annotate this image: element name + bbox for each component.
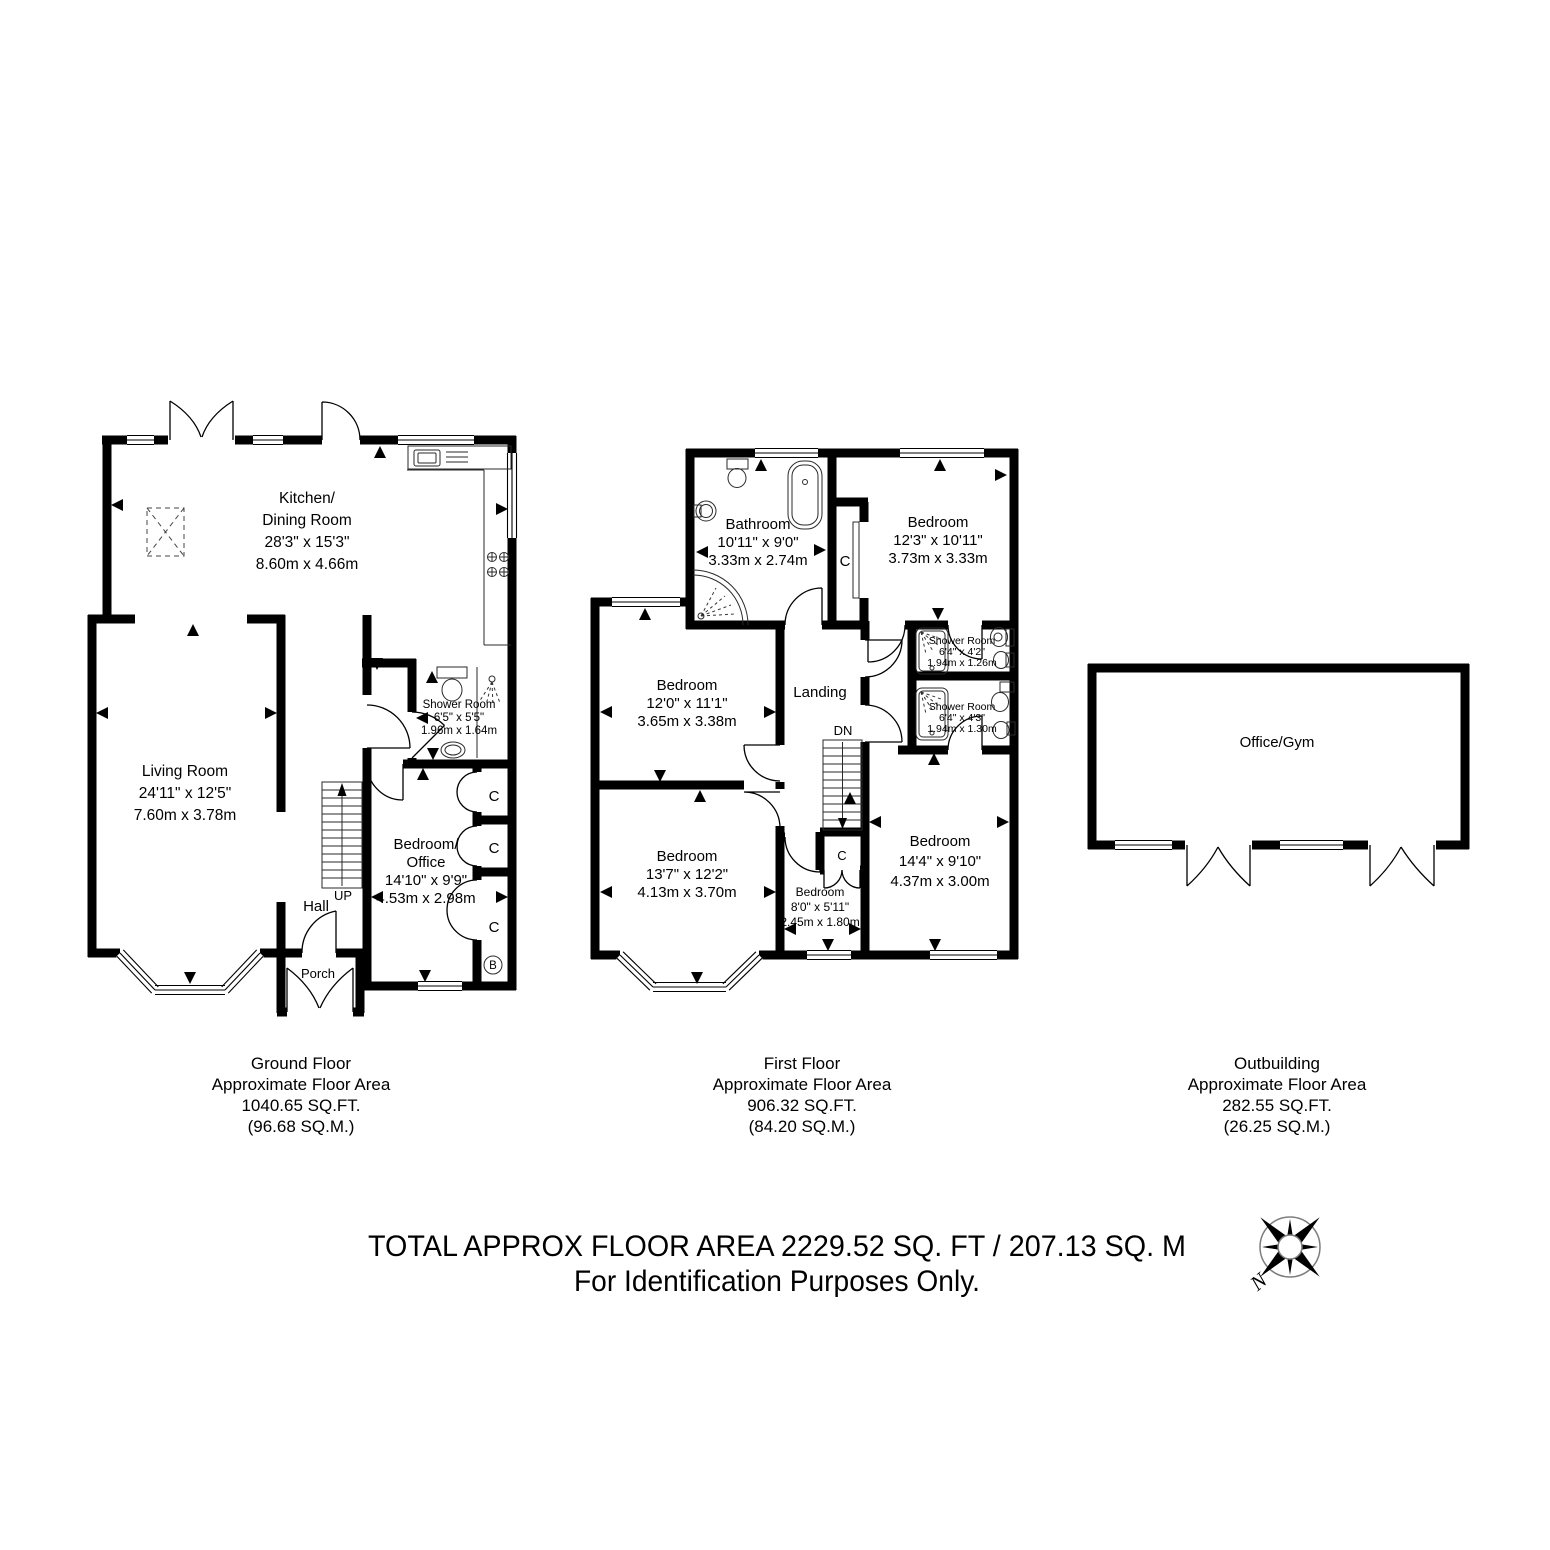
closet-door-3 [447, 880, 477, 940]
label-bedrear-metric: 3.73m x 3.33m [888, 550, 987, 567]
label-boiler: B [489, 960, 497, 972]
gf-caption-title: Ground Floor [251, 1054, 351, 1073]
label-kitchen-name2: Dining Room [262, 512, 352, 529]
label-living-imperial: 24'11" x 12'5" [139, 785, 231, 802]
label-bedrear-imperial: 12'3" x 10'11" [893, 532, 983, 549]
label-stairs-dn: DN [834, 723, 853, 738]
kitchen-hob [488, 553, 509, 577]
door-bedroom-office [367, 764, 403, 800]
label-stairs-up: UP [334, 888, 352, 903]
kitchen-counter [407, 446, 511, 645]
label-kitchen-metric: 8.60m x 4.66m [256, 556, 359, 573]
outbuilding-plan: Office/Gym [1088, 664, 1469, 886]
label-gf-shower-name: Shower Room [423, 699, 496, 711]
label-bedright-imperial: 14'4" x 9'10" [899, 853, 981, 870]
label-closet-1: C [489, 788, 500, 805]
label-bedsmall-name: Bedroom [796, 885, 845, 899]
ff-caption-subtitle: Approximate Floor Area [713, 1075, 892, 1094]
label-closet-2: C [489, 840, 500, 857]
ob-caption-subtitle: Approximate Floor Area [1188, 1075, 1367, 1094]
outbuilding-windows [1115, 841, 1343, 850]
label-bedfront-metric: 4.13m x 3.70m [637, 884, 736, 901]
toilet-icon [437, 667, 467, 678]
door-bedroom-rear [868, 625, 905, 662]
gf-caption-aream: (96.68 SQ.M.) [248, 1117, 355, 1136]
skylight [147, 508, 184, 556]
label-bedsmall-metric: 2.45m x 1.80m [780, 915, 859, 929]
shower-head-icon [489, 676, 495, 682]
ob-caption-aream: (26.25 SQ.M.) [1224, 1117, 1331, 1136]
toilet-icon [727, 459, 748, 469]
label-bedoffice-name2: Office [407, 854, 446, 871]
label-bedfront-imperial: 13'7" x 12'2" [646, 866, 728, 883]
label-gf-shower-imperial: 6'5" x 5'5" [434, 712, 484, 724]
label-bedrear-name: Bedroom [908, 514, 969, 531]
footer-total-area: TOTAL APPROX FLOOR AREA 2229.52 SQ. FT /… [368, 1230, 1186, 1263]
label-sr2-metric: 1.94m x 1.30m [927, 723, 997, 735]
gf-caption-subtitle: Approximate Floor Area [212, 1075, 391, 1094]
stairs-down [823, 740, 862, 830]
closet-door-1 [457, 772, 477, 812]
ff-caption-areaft: 906.32 SQ.FT. [747, 1096, 857, 1115]
label-closet-3: C [489, 919, 500, 936]
label-bedmid-name: Bedroom [657, 677, 718, 694]
label-bedfront-name: Bedroom [657, 848, 718, 865]
label-bedoffice-name1: Bedroom/ [393, 836, 459, 853]
label-bedmid-metric: 3.65m x 3.38m [637, 713, 736, 730]
label-ff-closet-2: C [837, 848, 846, 863]
ff-caption-title: First Floor [764, 1054, 841, 1073]
door-bedroom-mid [744, 745, 780, 781]
door-bathroom [785, 588, 822, 625]
corner-shower-icon [693, 570, 748, 625]
label-bedsmall-imperial: 8'0" x 5'11" [791, 900, 849, 914]
label-living-name: Living Room [142, 763, 228, 780]
label-bedmid-imperial: 12'0" x 11'1" [646, 695, 727, 712]
outbuilding-walls [1088, 664, 1469, 849]
label-ff-closet-1: C [840, 553, 851, 570]
outbuilding-labels: Office/Gym [1240, 734, 1315, 751]
outbuilding-doors [1187, 845, 1434, 886]
door-hall-porch [302, 911, 336, 953]
label-living-metric: 7.60m x 3.78m [134, 807, 237, 824]
label-sr1-metric: 1.94m x 1.26m [927, 657, 997, 669]
label-bathroom-name: Bathroom [725, 516, 790, 533]
label-bedright-name: Bedroom [910, 833, 971, 850]
double-door-left [1187, 845, 1250, 886]
door-bedroom-front [744, 792, 780, 828]
stairs-up [322, 782, 362, 888]
label-bedright-metric: 4.37m x 3.00m [890, 873, 989, 890]
compass-north-label: N [1245, 1267, 1273, 1296]
bay-window-bedroom-front [617, 952, 762, 992]
ob-caption-title: Outbuilding [1234, 1054, 1320, 1073]
gf-caption-areaft: 1040.65 SQ.FT. [241, 1096, 360, 1115]
first-floor-plan: Bathroom 10'11" x 9'0" 3.33m x 2.74m Bed… [591, 449, 1018, 992]
door-hall-corridor [367, 705, 410, 748]
ground-floor-labels: Kitchen/ Dining Room 28'3" x 15'3" 8.60m… [134, 490, 500, 981]
label-office-gym: Office/Gym [1240, 734, 1315, 751]
ground-floor-plan: Kitchen/ Dining Room 28'3" x 15'3" 8.60m… [88, 401, 517, 1013]
label-bedoffice-imperial: 14'10" x 9'9" [385, 872, 467, 889]
door-kitchen-side [322, 402, 360, 440]
label-porch: Porch [301, 966, 335, 981]
floorplan-page: Kitchen/ Dining Room 28'3" x 15'3" 8.60m… [0, 0, 1550, 1550]
label-bathroom-metric: 3.33m x 2.74m [708, 552, 807, 569]
door-bedroom-small [785, 837, 820, 872]
ob-caption-areaft: 282.55 SQ.FT. [1222, 1096, 1332, 1115]
stairs-down-arrow [838, 818, 847, 829]
door-landing-nook-2 [865, 705, 902, 742]
footer-text: TOTAL APPROX FLOOR AREA 2229.52 SQ. FT /… [368, 1230, 1186, 1298]
compass-rose: N [1245, 1217, 1320, 1296]
label-hall: Hall [303, 898, 329, 915]
double-door-right [1370, 845, 1434, 886]
ff-caption-aream: (84.20 SQ.M.) [749, 1117, 856, 1136]
floorplan-drawing: Kitchen/ Dining Room 28'3" x 15'3" 8.60m… [0, 0, 1550, 1550]
label-kitchen-name1: Kitchen/ [279, 490, 336, 507]
floor-captions: Ground Floor Approximate Floor Area 1040… [212, 1054, 1367, 1136]
footer-identification: For Identification Purposes Only. [574, 1265, 980, 1298]
label-landing: Landing [793, 684, 846, 701]
label-gf-shower-metric: 1.96m x 1.64m [421, 725, 497, 737]
double-door-kitchen [170, 401, 233, 440]
label-bathroom-imperial: 10'11" x 9'0" [717, 534, 798, 551]
label-bedoffice-metric: 4.53m x 2.98m [376, 890, 475, 907]
label-kitchen-imperial: 28'3" x 15'3" [264, 534, 349, 551]
sliding-door-closet [853, 522, 859, 598]
closet-door-2 [457, 826, 477, 866]
